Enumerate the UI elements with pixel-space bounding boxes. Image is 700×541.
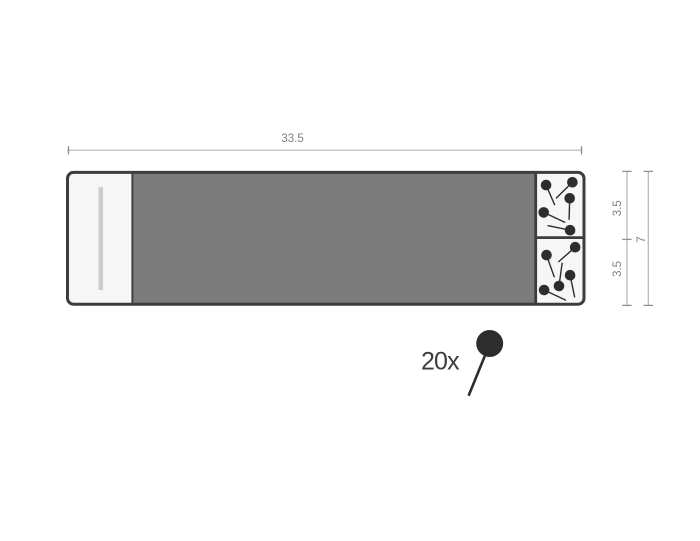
- svg-text:3.5: 3.5: [612, 200, 624, 216]
- svg-text:3.5: 3.5: [612, 261, 624, 277]
- svg-text:33.5: 33.5: [281, 133, 303, 145]
- svg-text:7: 7: [636, 236, 648, 242]
- svg-text:20x: 20x: [421, 348, 460, 376]
